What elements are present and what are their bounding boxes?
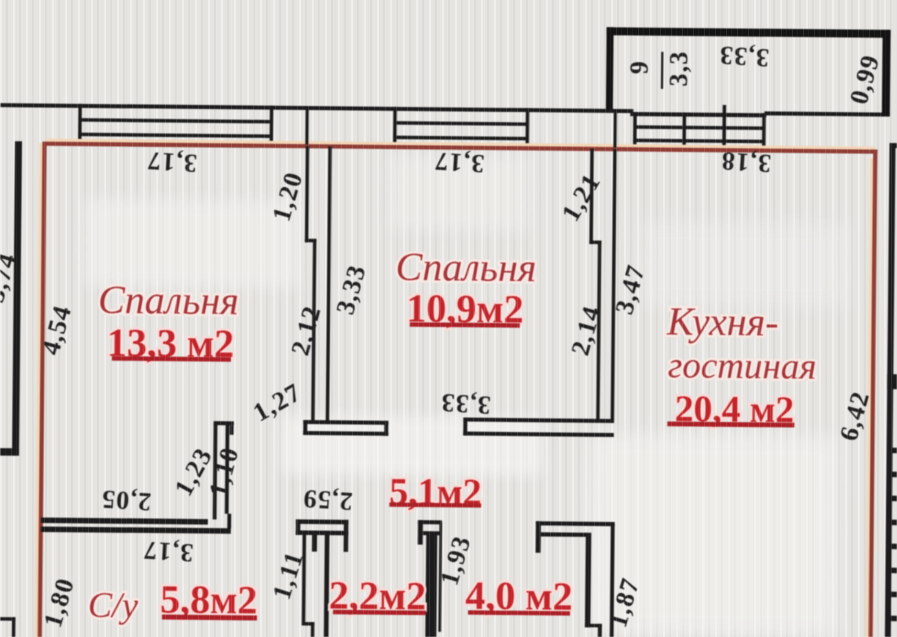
svg-text:3,3: 3,3 [664,50,693,86]
svg-text:1,20: 1,20 [266,168,308,224]
svg-text:1,21: 1,21 [556,168,607,226]
svg-text:3,18: 3,18 [720,146,772,178]
svg-text:2,12: 2,12 [285,302,326,358]
svg-text:3,33: 3,33 [439,388,491,420]
svg-text:3,17: 3,17 [142,535,194,567]
svg-text:Кухня-: Кухня- [666,298,779,344]
svg-text:3,47: 3,47 [609,261,650,317]
svg-text:Спальня: Спальня [395,244,536,290]
svg-text:2,59: 2,59 [301,484,353,516]
svg-text:9: 9 [624,60,653,74]
svg-text:2,14: 2,14 [565,302,606,358]
svg-text:3,33: 3,33 [330,261,371,317]
svg-text:0,99: 0,99 [844,51,885,107]
svg-text:Спальня: Спальня [98,277,239,323]
svg-text:2,05: 2,05 [100,484,152,516]
svg-text:гостиная: гостиная [668,345,817,387]
svg-text:3,17: 3,17 [433,146,485,178]
svg-text:3,33: 3,33 [718,40,770,72]
svg-text:3,17: 3,17 [146,146,198,178]
svg-text:1,80: 1,80 [38,574,80,630]
svg-text:С/у: С/у [88,585,138,625]
